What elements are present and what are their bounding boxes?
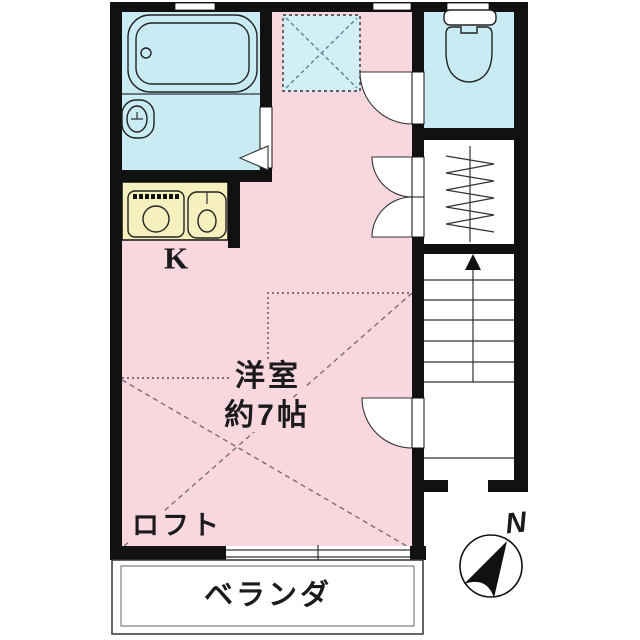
kitchen-counter bbox=[122, 182, 228, 240]
toilet-tank bbox=[444, 10, 496, 25]
wall-left bbox=[110, 2, 122, 560]
balcony-label: ベランダ bbox=[200, 581, 336, 612]
wall-bathroom-right-upper bbox=[260, 12, 272, 107]
staircase-area bbox=[424, 254, 514, 480]
closet-door-leaf bbox=[412, 157, 424, 197]
room-door-leaf bbox=[412, 398, 424, 448]
wall-room-right-3 bbox=[412, 237, 424, 398]
window-bathroom bbox=[175, 3, 215, 10]
floor-plan-canvas: 洋室 約7帖 ロフト ベランダ K N bbox=[0, 0, 640, 640]
wall-toilet-bottom bbox=[412, 128, 528, 140]
floor-plan-drawing bbox=[0, 0, 640, 640]
north-label: N bbox=[504, 508, 528, 539]
wall-bathroom-bottom bbox=[110, 170, 272, 182]
room-size-label: 約7帖 bbox=[220, 400, 314, 432]
closet-door-leaf bbox=[412, 197, 424, 237]
window-toilet bbox=[447, 3, 489, 10]
wall-entry-bottom-right bbox=[488, 480, 528, 492]
entry-door-opening bbox=[448, 481, 488, 491]
window-room-top bbox=[373, 3, 411, 10]
loft-label: ロフト bbox=[128, 512, 226, 541]
toilet-area bbox=[424, 12, 514, 128]
wall-closet-bottom bbox=[412, 244, 528, 254]
wall-bottom-left bbox=[110, 546, 226, 560]
compass-icon bbox=[460, 535, 522, 598]
wall-room-right-1 bbox=[412, 12, 424, 72]
room-name-label: 洋室 bbox=[231, 361, 305, 393]
toilet-door-leaf bbox=[412, 72, 424, 124]
wall-room-right-4 bbox=[412, 448, 424, 560]
skylight-area bbox=[283, 15, 360, 91]
wall-kitchen-stub bbox=[228, 182, 240, 248]
kitchen-label: K bbox=[164, 243, 188, 274]
